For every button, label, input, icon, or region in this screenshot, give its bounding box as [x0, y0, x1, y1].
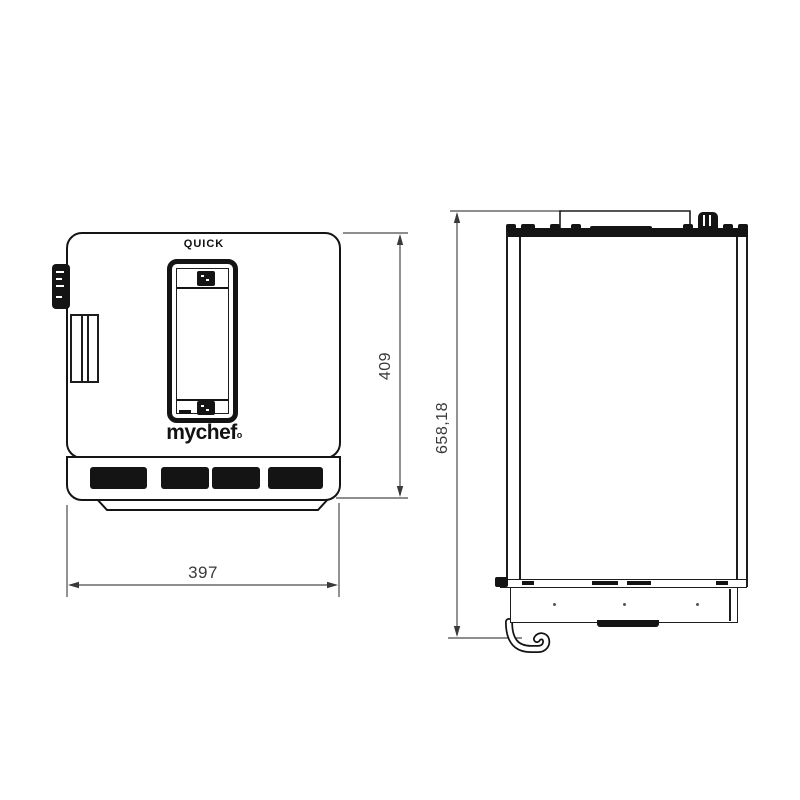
plinth-rear-line [729, 589, 731, 621]
joint-fastener [522, 581, 534, 585]
panel-top-sensor [197, 271, 215, 286]
dimension-409-lines [336, 233, 408, 498]
plinth-rivet [623, 603, 626, 606]
arrow-top-658 [454, 212, 460, 223]
control-panel-screen-frame [176, 268, 229, 414]
vent-slot [161, 467, 209, 489]
brand-trademark-icon: o [237, 430, 242, 440]
dimension-side-height: 658,18 [434, 388, 452, 468]
brand-text: mychef [166, 421, 237, 444]
front-rating-plate [52, 264, 70, 309]
front-model-label: QUICK [149, 238, 259, 250]
base-foot-tab [597, 620, 659, 627]
dimension-front-height: 409 [377, 331, 395, 401]
panel-top-divider [177, 287, 228, 289]
side-cable-gland [698, 212, 718, 229]
roof-fastener [723, 224, 733, 229]
dimension-397-lines [67, 503, 339, 597]
side-rear-edge-inner [736, 237, 738, 582]
arrow-top-409 [397, 234, 403, 245]
dimension-658-lines [448, 211, 562, 638]
roof-fastener [521, 224, 535, 229]
arrow-bottom-409 [397, 486, 403, 497]
joint-fastener [627, 581, 651, 585]
plinth-rivet [696, 603, 699, 606]
roof-fastener [506, 224, 516, 229]
side-roof-strip [506, 228, 748, 237]
technical-drawing-canvas: QUICK mychefo [0, 0, 800, 800]
handle-groove-line [87, 316, 89, 381]
arrow-left-397 [68, 582, 79, 588]
brand-logo: mychefo [139, 421, 269, 445]
panel-bottom-tab [179, 410, 191, 414]
vent-slot [268, 467, 323, 489]
joint-fastener [592, 581, 618, 585]
joint-strip-cap [495, 577, 508, 587]
roof-fastener [571, 224, 581, 229]
panel-bottom-sensor [197, 401, 215, 415]
roof-fastener [683, 224, 693, 229]
side-front-edge-outer [506, 232, 508, 582]
roof-fastener [550, 224, 560, 229]
roof-fastener [738, 224, 748, 229]
front-door-handle [70, 314, 99, 383]
plinth-rivet [553, 603, 556, 606]
side-front-edge-inner [519, 237, 521, 582]
side-rear-edge-outer [746, 237, 748, 587]
handle-groove-line [81, 316, 83, 381]
roof-rail [590, 226, 652, 229]
arrow-bottom-658 [454, 626, 460, 637]
arrow-right-397 [327, 582, 338, 588]
dimension-front-width: 397 [153, 564, 253, 582]
vent-slot [212, 467, 260, 489]
joint-fastener [716, 581, 728, 585]
vent-slot [90, 467, 147, 489]
